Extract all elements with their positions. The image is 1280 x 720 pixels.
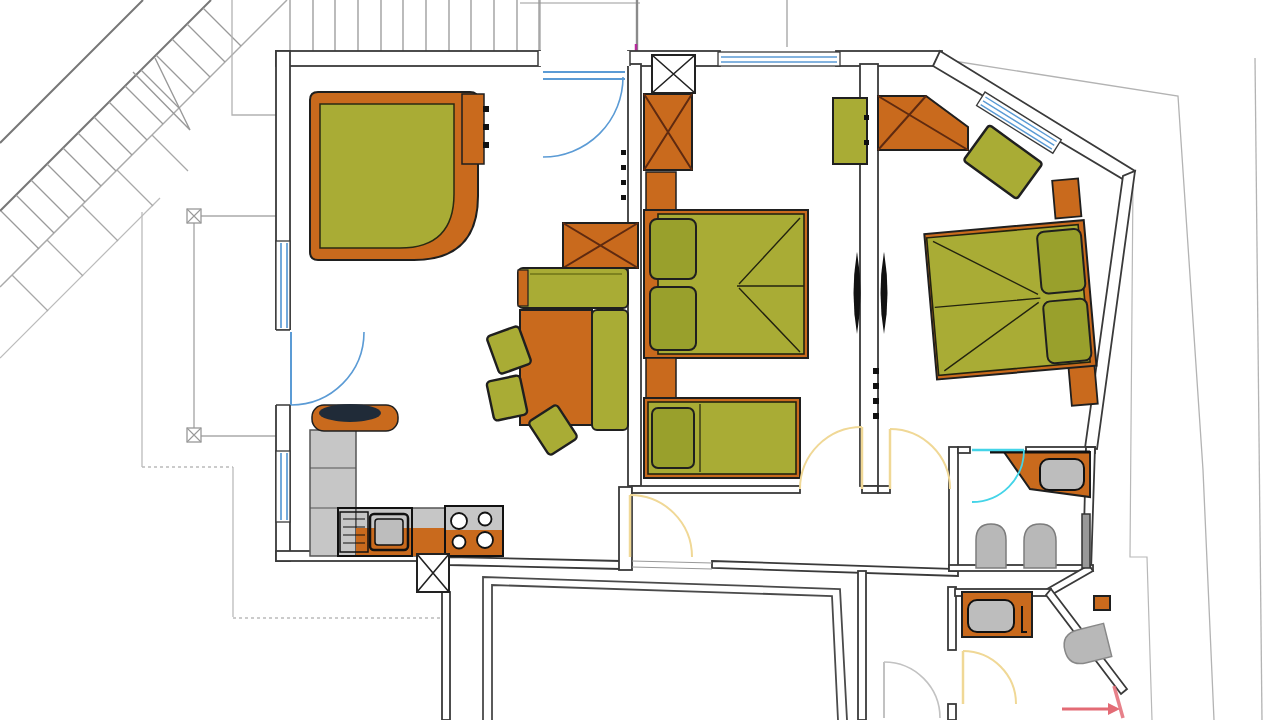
wall-divider-living-bed1 — [628, 64, 641, 486]
wall-bed1-south-stub — [862, 486, 878, 493]
stair-rail-lowest — [0, 198, 160, 358]
kitchen-cabinets — [310, 430, 356, 556]
direction-arrow — [1062, 686, 1123, 718]
wall-bath-left — [949, 447, 958, 571]
bedroom-2 — [854, 96, 1100, 419]
wall-bed1-south — [632, 486, 800, 493]
bedroom-1 — [644, 94, 869, 478]
window-bedroom1-top — [718, 52, 840, 66]
balcony-door — [275, 330, 364, 405]
side-shelf — [462, 94, 489, 164]
stair-treads — [1, 8, 241, 249]
bath-towel-radiator — [1082, 514, 1090, 568]
wc-door — [963, 651, 1016, 704]
stair-rail-inner — [0, 0, 211, 211]
kitchen-round-counter — [312, 404, 398, 431]
balcony-post-top — [187, 209, 201, 223]
floor-plan-svg — [0, 0, 1280, 720]
plot-boundary-right-2 — [1255, 58, 1262, 720]
bathroom — [972, 450, 1090, 568]
lower-room-outer-wall — [483, 577, 847, 720]
bed1-wall-bench — [833, 98, 869, 164]
bed1-wardrobe — [644, 94, 692, 170]
bed1-headboard-block — [646, 172, 676, 212]
wc-vanity — [962, 592, 1032, 637]
lower-room-inner-wall — [492, 585, 838, 720]
double-bed-2 — [921, 178, 1100, 417]
double-bed-1 — [644, 210, 808, 358]
dining-chair-2 — [486, 375, 528, 421]
plot-boundary-right-3 — [1130, 180, 1152, 720]
exterior-gray-door — [884, 662, 940, 718]
crossed-cupboard — [563, 223, 638, 268]
bed2-door — [890, 429, 950, 489]
floor-plan-canvas — [0, 0, 1280, 720]
bed1-nightstand — [646, 358, 676, 398]
stair-treads-lower — [12, 135, 188, 311]
dining-bench-top — [518, 268, 628, 308]
balcony-rail — [194, 216, 277, 436]
stair-rail-outer — [0, 0, 143, 143]
stair-upper-flight-lines — [290, 0, 539, 52]
lower-room — [483, 577, 847, 720]
dining-bench-right — [592, 310, 628, 430]
duct-box-kitchen — [417, 554, 449, 592]
kitchen-stove — [445, 506, 503, 556]
wall-bottom-living — [449, 557, 620, 569]
wall-hallway-south — [712, 561, 958, 576]
balcony-post-bottom — [187, 428, 201, 442]
bed1-door — [800, 427, 862, 489]
bath-toilet — [976, 524, 1006, 568]
wall-bath-bottom — [949, 565, 1093, 571]
window-left-2 — [276, 451, 290, 522]
wall-corridor-left — [858, 571, 866, 720]
wall-radiator-bed2-side — [881, 252, 888, 334]
wall-corridor-right-b — [948, 704, 956, 720]
single-bed — [644, 398, 800, 478]
corner-sofa-cushion — [320, 104, 454, 248]
window-left-1 — [276, 241, 290, 330]
wall-top-right-segment — [836, 51, 942, 66]
bath-bidet — [1024, 524, 1056, 568]
coat-hooks — [621, 150, 626, 200]
hall-south-door — [630, 495, 712, 569]
duct-box-top — [652, 55, 695, 93]
bed2-wardrobe — [878, 96, 968, 150]
wall-bath-top-a — [958, 447, 970, 453]
wc-corner-duct — [1094, 596, 1110, 610]
wall-top-left-segment — [276, 51, 540, 66]
wc — [962, 592, 1112, 704]
wall-bed2-south — [878, 486, 890, 493]
wall-below-duct — [442, 592, 450, 720]
entry-door — [538, 51, 630, 157]
stair-rail-lower — [0, 0, 287, 287]
